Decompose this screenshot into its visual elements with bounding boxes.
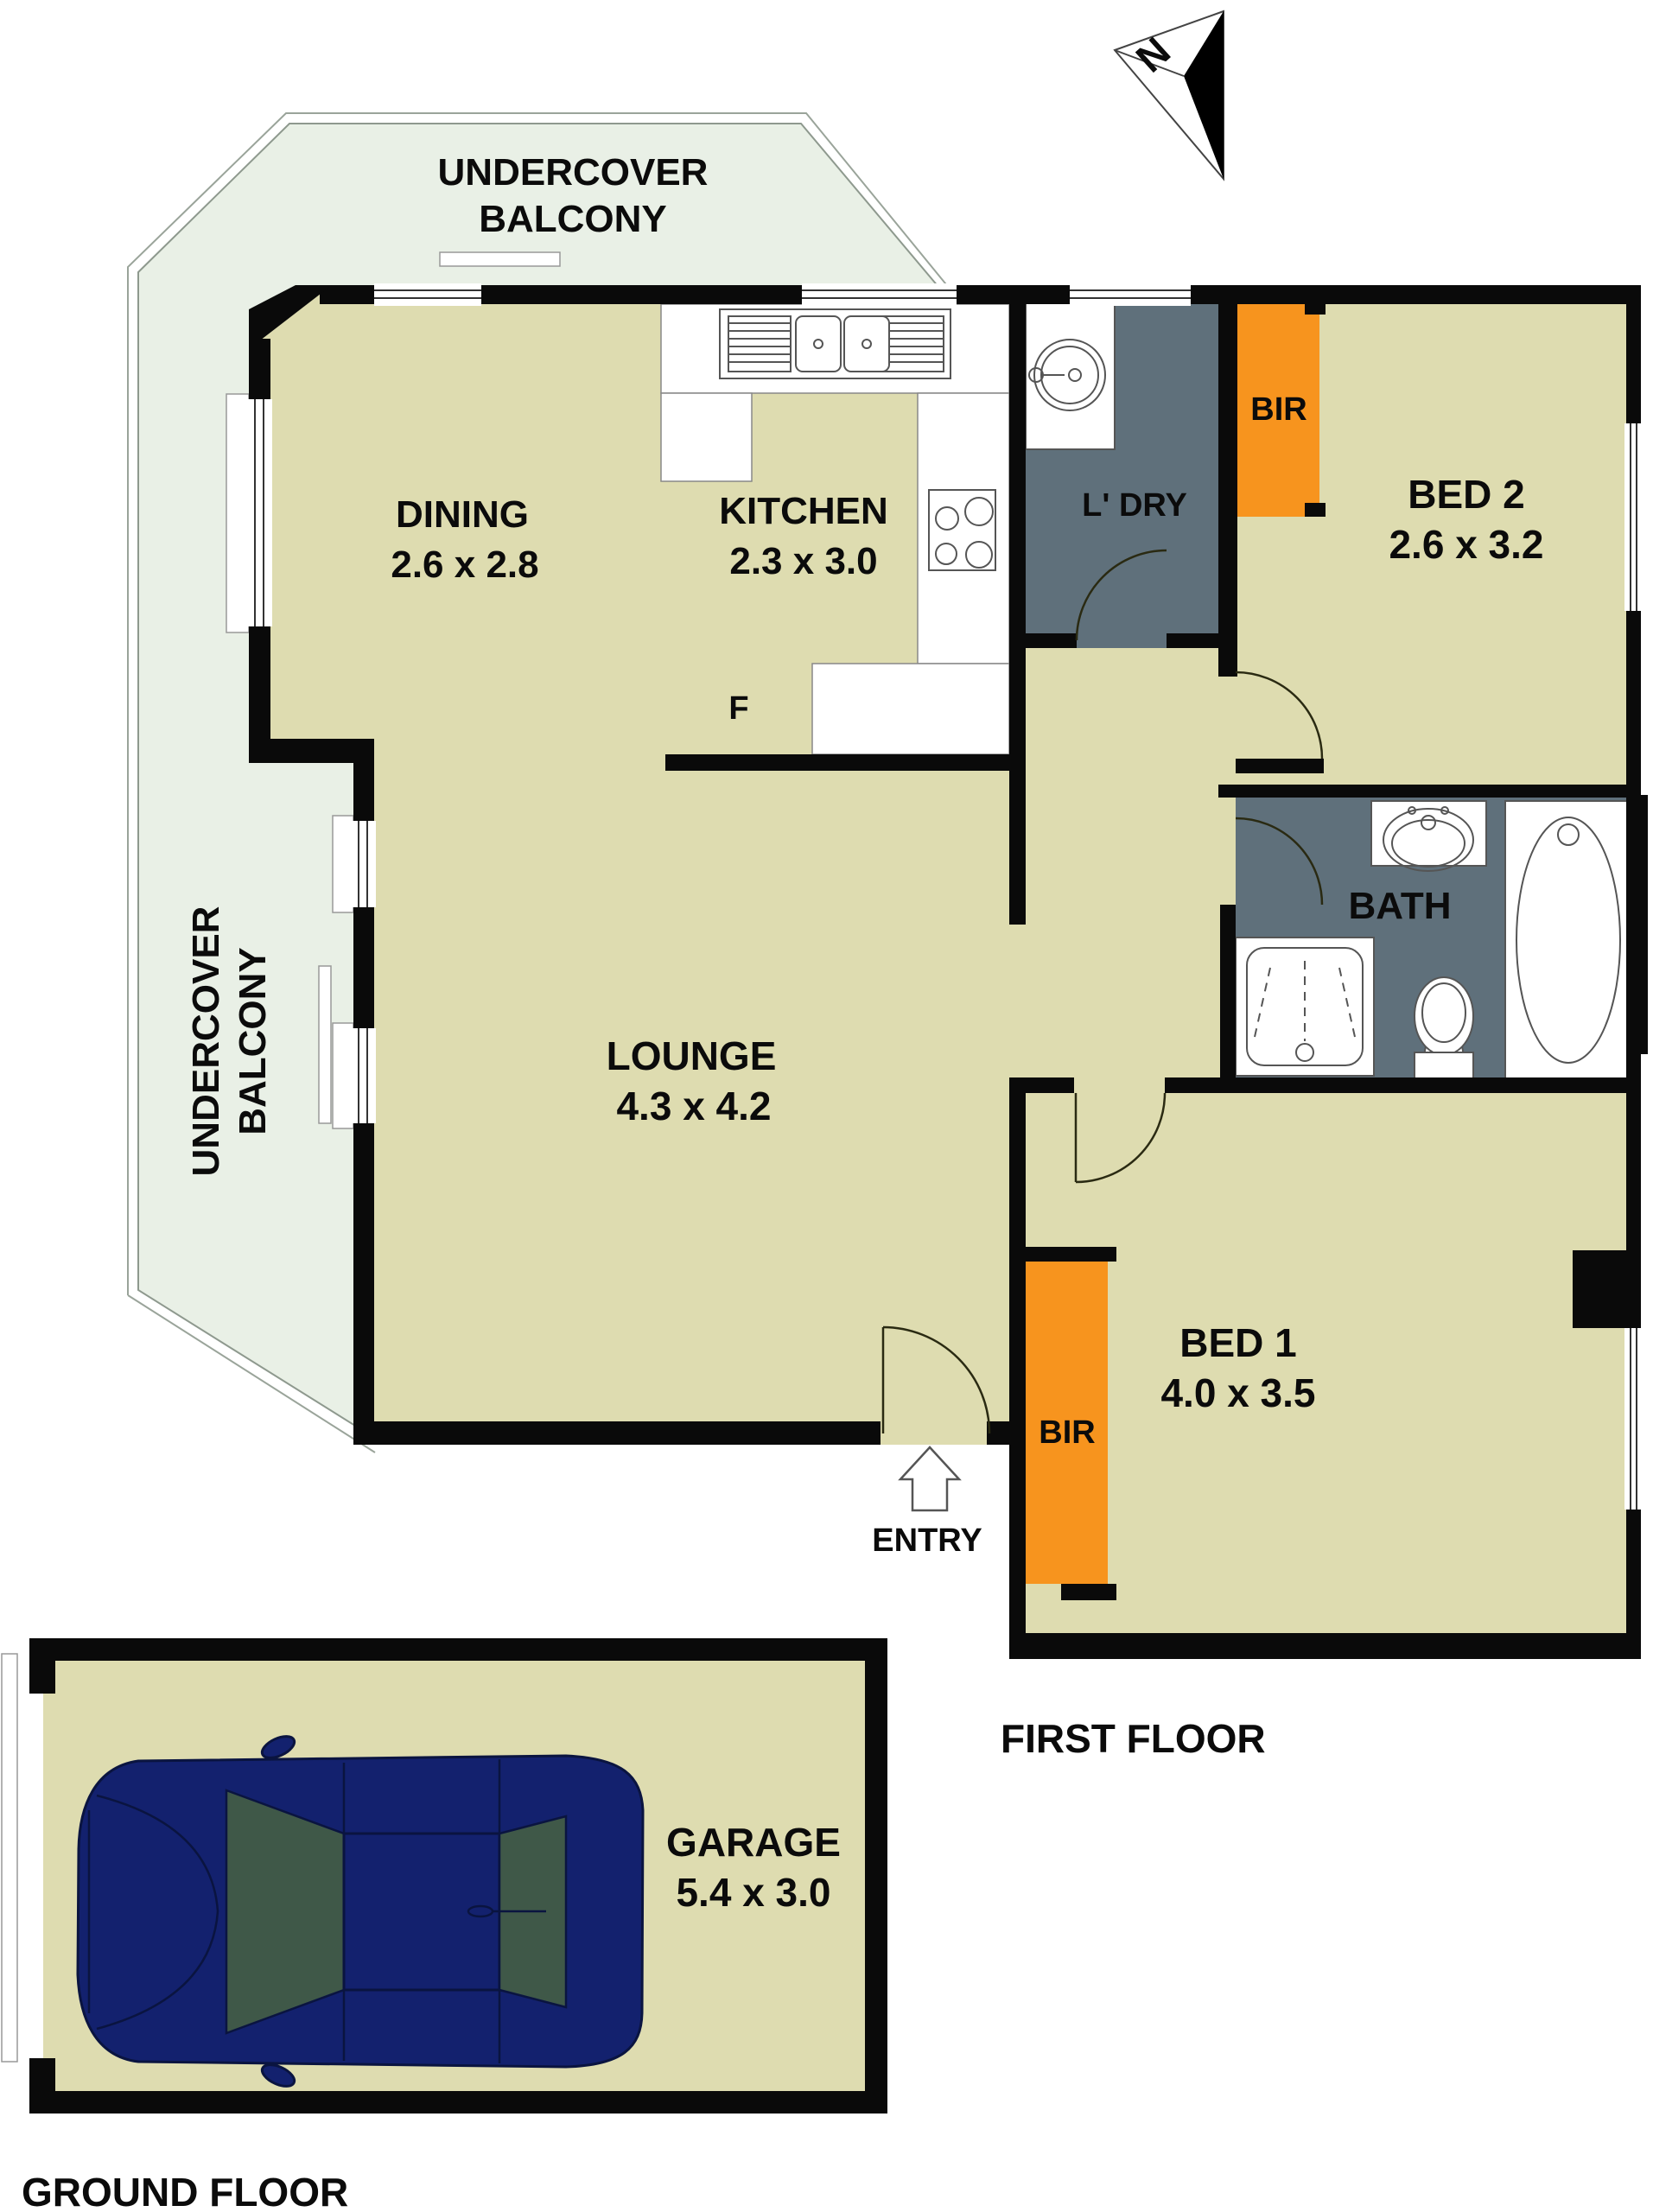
window <box>1624 423 1643 611</box>
garage-door <box>2 1654 17 2062</box>
fridge-label: F <box>728 690 748 727</box>
entry-label: ENTRY <box>872 1522 982 1559</box>
toilet-icon <box>1415 977 1473 1080</box>
bir2-label: BIR <box>1039 1414 1095 1451</box>
balcony-left-label-line1: UNDERCOVER <box>185 906 227 1177</box>
garage-label: GARAGE <box>666 1820 841 1865</box>
floor-plan-canvas: N UNDERCOVER BALCONY UNDERCOVER BALCONY … <box>0 0 1653 2212</box>
laundry-label: L' DRY <box>1082 487 1187 524</box>
bir1-label: BIR <box>1250 391 1307 428</box>
bed2-dims: 2.6 x 3.2 <box>1389 522 1543 567</box>
lounge-dims: 4.3 x 4.2 <box>616 1084 771 1128</box>
balcony-rail <box>319 966 331 1123</box>
balcony-rail <box>440 252 560 266</box>
bath-label: BATH <box>1349 885 1452 927</box>
bed1-dims: 4.0 x 3.5 <box>1160 1370 1315 1415</box>
window <box>1624 1328 1643 1510</box>
window <box>352 1028 376 1123</box>
ground-floor-title: GROUND FLOOR <box>22 2170 348 2212</box>
garage-dims: 5.4 x 3.0 <box>676 1870 830 1915</box>
balcony-top-label-line2: BALCONY <box>479 198 667 240</box>
kitchen-dims: 2.3 x 3.0 <box>729 540 877 582</box>
window <box>247 399 272 626</box>
balcony-top-label-line1: UNDERCOVER <box>438 151 709 194</box>
dining-dims: 2.6 x 2.8 <box>391 543 538 586</box>
bed2-label: BED 2 <box>1408 472 1524 517</box>
window <box>1070 283 1191 306</box>
bed1-label: BED 1 <box>1179 1320 1296 1365</box>
entry-arrow-icon <box>900 1447 959 1510</box>
lounge-label: LOUNGE <box>607 1033 777 1078</box>
kitchen-label: KITCHEN <box>719 490 888 532</box>
window <box>802 283 957 306</box>
window <box>374 283 481 306</box>
balcony-left-label-line2: BALCONY <box>232 947 274 1135</box>
north-arrow-icon: N <box>1115 11 1224 179</box>
vanity-icon <box>1371 801 1486 871</box>
shower-icon <box>1236 938 1374 1076</box>
bathtub-icon <box>1505 801 1631 1080</box>
stove-icon <box>929 490 995 570</box>
window <box>352 821 376 907</box>
sink-icon <box>720 309 950 378</box>
car-icon <box>78 1732 643 2090</box>
laundry-tub-icon <box>1026 301 1115 449</box>
floor-plan-page: N UNDERCOVER BALCONY UNDERCOVER BALCONY … <box>0 0 1653 2212</box>
first-floor-title: FIRST FLOOR <box>1001 1716 1266 1761</box>
dining-label: DINING <box>396 493 529 536</box>
